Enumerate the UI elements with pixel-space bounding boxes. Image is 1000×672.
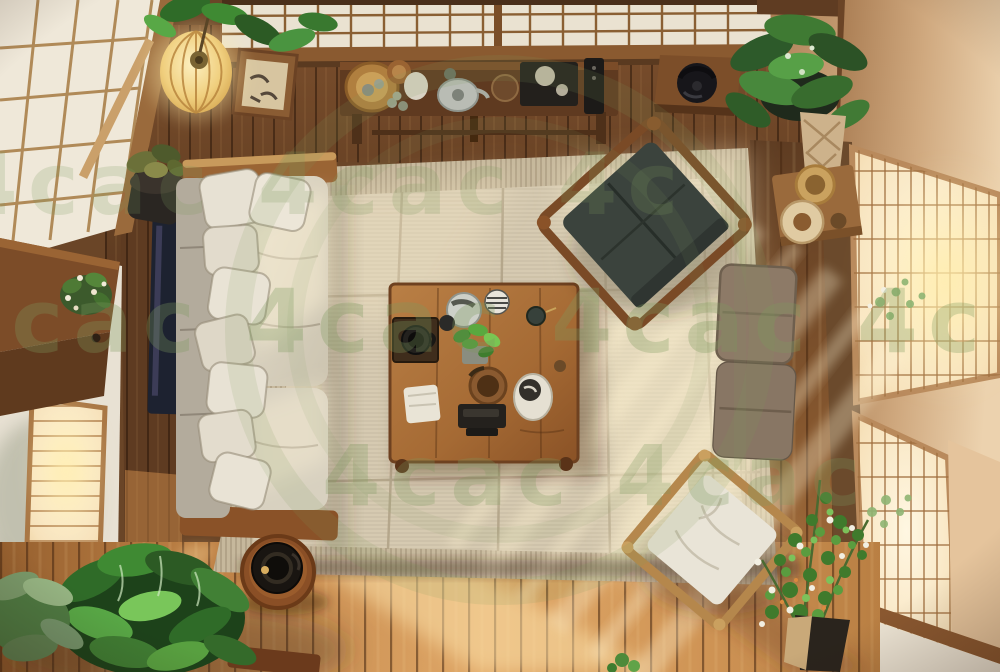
vignette-overlay <box>0 0 1000 672</box>
scene-canvas: 4cac 4cac 4c 4cac 4cac 4cac 4c 4cac 4cac <box>0 0 1000 672</box>
living-room-photo: 4cac 4cac 4c 4cac 4cac 4cac 4c 4cac 4cac <box>0 0 1000 672</box>
